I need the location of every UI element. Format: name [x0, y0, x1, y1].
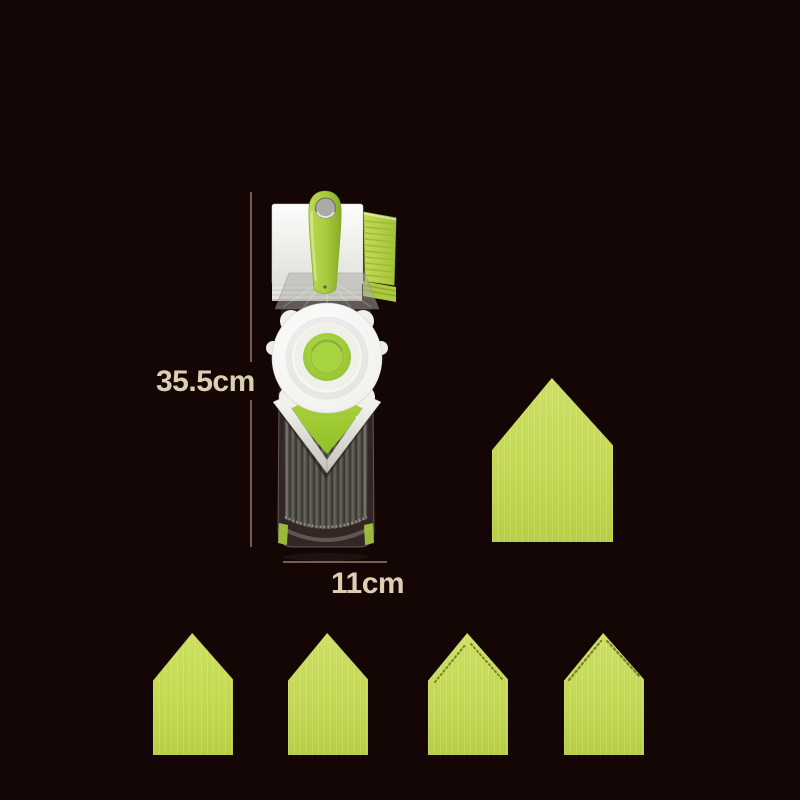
blade-insert-2	[288, 633, 368, 755]
slicer-device	[265, 185, 405, 565]
blade-insert-3	[428, 633, 508, 755]
adjustment-dial	[266, 303, 388, 413]
height-dimension-line-upper	[250, 192, 252, 362]
width-dimension-label: 11cm	[331, 567, 404, 601]
height-dimension-label: 35.5cm	[156, 365, 246, 399]
slicer-handle	[309, 191, 341, 294]
product-photo: 35.5cm 11cm	[0, 0, 800, 800]
blade-insert-1	[153, 633, 233, 755]
height-dimension-line-lower	[250, 400, 252, 547]
blade-insert-large	[492, 378, 613, 542]
blade-insert-4	[564, 633, 644, 755]
serration-dots	[428, 633, 508, 755]
serration-dots	[564, 633, 644, 755]
